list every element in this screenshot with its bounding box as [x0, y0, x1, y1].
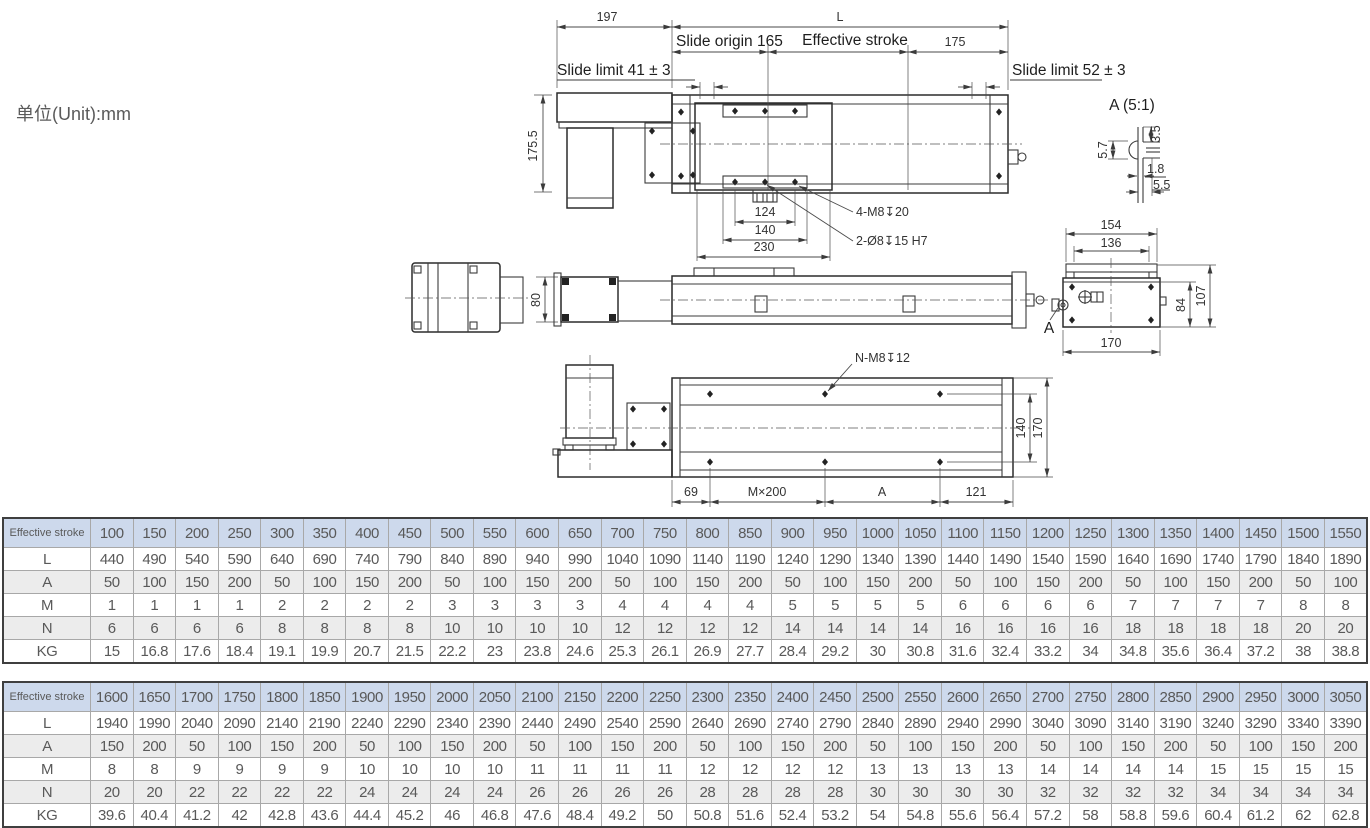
stroke-value: 1050 — [899, 518, 942, 548]
dim-107: 107 — [1194, 286, 1208, 307]
stroke-value: 2900 — [1197, 682, 1240, 712]
stroke-value: 2450 — [814, 682, 857, 712]
value-cell: 890 — [473, 548, 516, 571]
dim-154: 154 — [1101, 218, 1122, 232]
value-cell: 33.2 — [1027, 640, 1070, 664]
value-cell: 940 — [516, 548, 559, 571]
dim-L: L — [837, 10, 844, 24]
value-cell: 2 — [261, 594, 304, 617]
stroke-value: 1100 — [941, 518, 984, 548]
value-cell: 150 — [346, 571, 389, 594]
value-cell: 32 — [1154, 781, 1197, 804]
value-cell: 18.4 — [218, 640, 261, 664]
value-cell: 16 — [984, 617, 1027, 640]
value-cell: 200 — [729, 571, 772, 594]
value-cell: 3 — [473, 594, 516, 617]
stroke-value: 1550 — [1324, 518, 1367, 548]
value-cell: 11 — [601, 758, 644, 781]
value-cell: 100 — [218, 735, 261, 758]
value-cell: 11 — [516, 758, 559, 781]
end-view: A 154 136 84 107 170 — [1044, 218, 1216, 356]
value-cell: 32 — [1112, 781, 1155, 804]
value-cell: 100 — [473, 571, 516, 594]
stroke-value: 1850 — [303, 682, 346, 712]
stroke-value: 650 — [559, 518, 602, 548]
value-cell: 24 — [388, 781, 431, 804]
row-label: KG — [3, 804, 91, 828]
stroke-value: 2300 — [686, 682, 729, 712]
value-cell: 150 — [856, 571, 899, 594]
value-cell: 1940 — [91, 712, 134, 735]
value-cell: 200 — [1154, 735, 1197, 758]
value-cell: 4 — [729, 594, 772, 617]
stroke-value: 2600 — [941, 682, 984, 712]
value-cell: 2090 — [218, 712, 261, 735]
value-cell: 18 — [1154, 617, 1197, 640]
stroke-value: 1450 — [1239, 518, 1282, 548]
table-row-l: L194019902040209021402190224022902340239… — [3, 712, 1367, 735]
value-cell: 1990 — [133, 712, 176, 735]
value-cell: 2440 — [516, 712, 559, 735]
value-cell: 9 — [303, 758, 346, 781]
row-label: N — [3, 617, 91, 640]
stroke-value: 1400 — [1197, 518, 1240, 548]
stroke-value: 1650 — [133, 682, 176, 712]
stroke-value: 2200 — [601, 682, 644, 712]
value-cell: 8 — [388, 617, 431, 640]
stroke-value: 150 — [133, 518, 176, 548]
value-cell: 27.7 — [729, 640, 772, 664]
value-cell: 440 — [91, 548, 134, 571]
value-cell: 640 — [261, 548, 304, 571]
value-cell: 590 — [218, 548, 261, 571]
value-cell: 34 — [1197, 781, 1240, 804]
value-cell: 24 — [473, 781, 516, 804]
value-cell: 23 — [473, 640, 516, 664]
value-cell: 790 — [388, 548, 431, 571]
value-cell: 17.6 — [176, 640, 219, 664]
value-cell: 12 — [601, 617, 644, 640]
value-cell: 100 — [814, 571, 857, 594]
value-cell: 58 — [1069, 804, 1112, 828]
stroke-value: 1300 — [1112, 518, 1155, 548]
value-cell: 200 — [133, 735, 176, 758]
value-cell: 2640 — [686, 712, 729, 735]
value-cell: 1390 — [899, 548, 942, 571]
value-cell: 58.8 — [1112, 804, 1155, 828]
table-row-m: M889999101010101111111112121212131313131… — [3, 758, 1367, 781]
value-cell: 5 — [814, 594, 857, 617]
stroke-value: 750 — [644, 518, 687, 548]
dim-197: 197 — [597, 10, 618, 24]
value-cell: 9 — [218, 758, 261, 781]
value-cell: 1540 — [1027, 548, 1070, 571]
dim-84: 84 — [1174, 298, 1188, 312]
value-cell: 10 — [559, 617, 602, 640]
dim-124: 124 — [755, 205, 776, 219]
value-cell: 3 — [559, 594, 602, 617]
value-cell: 3390 — [1324, 712, 1367, 735]
value-cell: 6 — [133, 617, 176, 640]
stroke-value: 2750 — [1069, 682, 1112, 712]
side-elevation-view: 80 — [529, 268, 1048, 328]
value-cell: 3090 — [1069, 712, 1112, 735]
stroke-value: 1900 — [346, 682, 389, 712]
value-cell: 8 — [346, 617, 389, 640]
value-cell: 15 — [91, 640, 134, 664]
value-cell: 51.6 — [729, 804, 772, 828]
value-cell: 10 — [516, 617, 559, 640]
value-cell: 20 — [133, 781, 176, 804]
dim-80: 80 — [529, 293, 543, 307]
value-cell: 6 — [91, 617, 134, 640]
value-cell: 100 — [388, 735, 431, 758]
value-cell: 34 — [1069, 640, 1112, 664]
value-cell: 6 — [984, 594, 1027, 617]
stroke-value: 2700 — [1027, 682, 1070, 712]
value-cell: 11 — [644, 758, 687, 781]
value-cell: 14 — [1027, 758, 1070, 781]
value-cell: 690 — [303, 548, 346, 571]
value-cell: 9 — [261, 758, 304, 781]
stroke-value: 1350 — [1154, 518, 1197, 548]
value-cell: 46 — [431, 804, 474, 828]
value-cell: 26 — [559, 781, 602, 804]
value-cell: 200 — [1069, 571, 1112, 594]
dim-69: 69 — [684, 485, 698, 499]
value-cell: 50 — [431, 571, 474, 594]
table-row-kg: KG1516.817.618.419.119.920.721.522.22323… — [3, 640, 1367, 664]
value-cell: 20.7 — [346, 640, 389, 664]
value-cell: 28 — [771, 781, 814, 804]
value-cell: 62 — [1282, 804, 1325, 828]
value-cell: 12 — [644, 617, 687, 640]
value-cell: 25.3 — [601, 640, 644, 664]
value-cell: 30 — [856, 781, 899, 804]
stroke-value: 1800 — [261, 682, 304, 712]
stroke-value: 850 — [729, 518, 772, 548]
value-cell: 200 — [303, 735, 346, 758]
value-cell: 3140 — [1112, 712, 1155, 735]
value-cell: 200 — [388, 571, 431, 594]
value-cell: 50 — [91, 571, 134, 594]
value-cell: 14 — [856, 617, 899, 640]
value-cell: 200 — [644, 735, 687, 758]
value-cell: 1490 — [984, 548, 1027, 571]
value-cell: 150 — [261, 735, 304, 758]
stroke-value: 2950 — [1239, 682, 1282, 712]
dim-175: 175 — [945, 35, 966, 49]
value-cell: 11 — [559, 758, 602, 781]
value-cell: 13 — [984, 758, 1027, 781]
value-cell: 50.8 — [686, 804, 729, 828]
row-label: M — [3, 758, 91, 781]
value-cell: 42.8 — [261, 804, 304, 828]
value-cell: 100 — [984, 571, 1027, 594]
value-cell: 10 — [431, 617, 474, 640]
stroke-value: 2650 — [984, 682, 1027, 712]
value-cell: 150 — [686, 571, 729, 594]
value-cell: 52.4 — [771, 804, 814, 828]
value-cell: 100 — [899, 735, 942, 758]
stroke-header-row: Effective stroke160016501700175018001850… — [3, 682, 1367, 712]
value-cell: 28 — [729, 781, 772, 804]
value-cell: 10 — [346, 758, 389, 781]
stroke-value: 2850 — [1154, 682, 1197, 712]
value-cell: 20 — [1282, 617, 1325, 640]
value-cell: 100 — [303, 571, 346, 594]
value-cell: 15 — [1324, 758, 1367, 781]
value-cell: 40.4 — [133, 804, 176, 828]
value-cell: 16 — [1027, 617, 1070, 640]
stroke-value: 200 — [176, 518, 219, 548]
stroke-value: 400 — [346, 518, 389, 548]
value-cell: 22.2 — [431, 640, 474, 664]
row-label: L — [3, 548, 91, 571]
value-cell: 150 — [91, 735, 134, 758]
value-cell: 2490 — [559, 712, 602, 735]
value-cell: 61.2 — [1239, 804, 1282, 828]
value-cell: 12 — [771, 758, 814, 781]
value-cell: 26 — [601, 781, 644, 804]
stroke-value: 800 — [686, 518, 729, 548]
value-cell: 8 — [303, 617, 346, 640]
row-label: L — [3, 712, 91, 735]
value-cell: 490 — [133, 548, 176, 571]
value-cell: 18 — [1197, 617, 1240, 640]
value-cell: 38.8 — [1324, 640, 1367, 664]
value-cell: 10 — [473, 758, 516, 781]
value-cell: 8 — [261, 617, 304, 640]
value-cell: 200 — [814, 735, 857, 758]
value-cell: 12 — [686, 758, 729, 781]
stroke-value: 2800 — [1112, 682, 1155, 712]
stroke-value: 1700 — [176, 682, 219, 712]
value-cell: 35.6 — [1154, 640, 1197, 664]
plan-view: 197 L Slide origin 165 Effective stroke … — [526, 10, 1126, 261]
value-cell: 24 — [431, 781, 474, 804]
value-cell: 2990 — [984, 712, 1027, 735]
value-cell: 9 — [176, 758, 219, 781]
dimension-table-2: Effective stroke160016501700175018001850… — [2, 681, 1368, 828]
value-cell: 30.8 — [899, 640, 942, 664]
value-cell: 3 — [431, 594, 474, 617]
row-label: A — [3, 571, 91, 594]
table-row-a: A501001502005010015020050100150200501001… — [3, 571, 1367, 594]
value-cell: 7 — [1112, 594, 1155, 617]
value-cell: 13 — [941, 758, 984, 781]
value-cell: 37.2 — [1239, 640, 1282, 664]
value-cell: 22 — [176, 781, 219, 804]
value-cell: 10 — [388, 758, 431, 781]
value-cell: 200 — [473, 735, 516, 758]
value-cell: 24 — [346, 781, 389, 804]
value-cell: 26.9 — [686, 640, 729, 664]
value-cell: 1 — [218, 594, 261, 617]
row-label: M — [3, 594, 91, 617]
slide-origin-label: Slide origin 165 — [676, 33, 783, 50]
value-cell: 15 — [1197, 758, 1240, 781]
value-cell: 150 — [1112, 735, 1155, 758]
stroke-value: 350 — [303, 518, 346, 548]
dim-170-bottom: 170 — [1031, 418, 1045, 439]
value-cell: 100 — [133, 571, 176, 594]
table-row-m: M111122223333444455556666777788 — [3, 594, 1367, 617]
value-cell: 200 — [559, 571, 602, 594]
value-cell: 100 — [559, 735, 602, 758]
stroke-value: 1200 — [1027, 518, 1070, 548]
detail-a-view: A (5:1) 5.7 3.5 1.8 5.5 — [1096, 97, 1170, 203]
value-cell: 14 — [1154, 758, 1197, 781]
dim-A: A — [878, 485, 887, 499]
slide-limit-left-label: Slide limit 41 ± 3 — [557, 62, 671, 79]
value-cell: 50 — [346, 735, 389, 758]
stroke-value: 1000 — [856, 518, 899, 548]
value-cell: 15 — [1239, 758, 1282, 781]
value-cell: 1640 — [1112, 548, 1155, 571]
dim-3-5: 3.5 — [1149, 125, 1163, 142]
value-cell: 2590 — [644, 712, 687, 735]
stroke-value: 1600 — [91, 682, 134, 712]
row-label: KG — [3, 640, 91, 664]
row-label: N — [3, 781, 91, 804]
value-cell: 6 — [941, 594, 984, 617]
value-cell: 6 — [1027, 594, 1070, 617]
value-cell: 21.5 — [388, 640, 431, 664]
effective-stroke-label: Effective stroke — [802, 32, 908, 49]
stroke-value: 550 — [473, 518, 516, 548]
value-cell: 2740 — [771, 712, 814, 735]
value-cell: 2190 — [303, 712, 346, 735]
dim-1-8: 1.8 — [1147, 162, 1164, 176]
value-cell: 200 — [1324, 735, 1367, 758]
value-cell: 34 — [1324, 781, 1367, 804]
dim-230: 230 — [754, 240, 775, 254]
value-cell: 16 — [1069, 617, 1112, 640]
stroke-value: 1500 — [1282, 518, 1325, 548]
value-cell: 53.2 — [814, 804, 857, 828]
value-cell: 8 — [1282, 594, 1325, 617]
value-cell: 59.6 — [1154, 804, 1197, 828]
value-cell: 34 — [1282, 781, 1325, 804]
value-cell: 50 — [601, 571, 644, 594]
value-cell: 7 — [1197, 594, 1240, 617]
value-cell: 1690 — [1154, 548, 1197, 571]
value-cell: 28 — [814, 781, 857, 804]
dim-136: 136 — [1101, 236, 1122, 250]
value-cell: 8 — [91, 758, 134, 781]
value-cell: 13 — [856, 758, 899, 781]
bottom-view: N-M8↧12 140 170 69 M×200 A 121 — [553, 351, 1053, 507]
table-row-a: A150200501001502005010015020050100150200… — [3, 735, 1367, 758]
dim-121: 121 — [966, 485, 987, 499]
dim-5-7: 5.7 — [1096, 141, 1110, 158]
value-cell: 5 — [856, 594, 899, 617]
value-cell: 7 — [1154, 594, 1197, 617]
effective-stroke-label: Effective stroke — [3, 682, 91, 712]
value-cell: 150 — [516, 571, 559, 594]
value-cell: 3240 — [1197, 712, 1240, 735]
value-cell: 6 — [176, 617, 219, 640]
stroke-value: 3000 — [1282, 682, 1325, 712]
value-cell: 14 — [899, 617, 942, 640]
value-cell: 14 — [1112, 758, 1155, 781]
value-cell: 24.6 — [559, 640, 602, 664]
value-cell: 14 — [1069, 758, 1112, 781]
value-cell: 32 — [1027, 781, 1070, 804]
value-cell: 2790 — [814, 712, 857, 735]
value-cell: 26 — [644, 781, 687, 804]
value-cell: 1090 — [644, 548, 687, 571]
stroke-value: 250 — [218, 518, 261, 548]
stroke-value: 2100 — [516, 682, 559, 712]
stroke-value: 2000 — [431, 682, 474, 712]
value-cell: 23.8 — [516, 640, 559, 664]
value-cell: 20 — [91, 781, 134, 804]
value-cell: 39.6 — [91, 804, 134, 828]
value-cell: 1 — [133, 594, 176, 617]
value-cell: 20 — [1324, 617, 1367, 640]
detail-a-pointer-label: A — [1044, 320, 1055, 337]
value-cell: 150 — [941, 735, 984, 758]
value-cell: 48.4 — [559, 804, 602, 828]
value-cell: 50 — [1027, 735, 1070, 758]
value-cell: 44.4 — [346, 804, 389, 828]
value-cell: 18 — [1239, 617, 1282, 640]
value-cell: 8 — [1324, 594, 1367, 617]
value-cell: 100 — [1239, 735, 1282, 758]
stroke-value: 900 — [771, 518, 814, 548]
value-cell: 30 — [899, 781, 942, 804]
value-cell: 16.8 — [133, 640, 176, 664]
value-cell: 54.8 — [899, 804, 942, 828]
value-cell: 2390 — [473, 712, 516, 735]
value-cell: 56.4 — [984, 804, 1027, 828]
value-cell: 12 — [729, 617, 772, 640]
value-cell: 2140 — [261, 712, 304, 735]
value-cell: 5 — [899, 594, 942, 617]
value-cell: 4 — [601, 594, 644, 617]
value-cell: 60.4 — [1197, 804, 1240, 828]
value-cell: 1440 — [941, 548, 984, 571]
value-cell: 10 — [473, 617, 516, 640]
value-cell: 150 — [601, 735, 644, 758]
value-cell: 50 — [1112, 571, 1155, 594]
value-cell: 49.2 — [601, 804, 644, 828]
value-cell: 1240 — [771, 548, 814, 571]
value-cell: 1790 — [1239, 548, 1282, 571]
value-cell: 100 — [729, 735, 772, 758]
value-cell: 22 — [261, 781, 304, 804]
value-cell: 50 — [176, 735, 219, 758]
value-cell: 2340 — [431, 712, 474, 735]
value-cell: 50 — [856, 735, 899, 758]
table-row-l: L440490540590640690740790840890940990104… — [3, 548, 1367, 571]
stroke-value: 2250 — [644, 682, 687, 712]
motor-top-view — [405, 263, 528, 332]
effective-stroke-label: Effective stroke — [3, 518, 91, 548]
value-cell: 2040 — [176, 712, 219, 735]
value-cell: 50 — [1282, 571, 1325, 594]
stroke-value: 1950 — [388, 682, 431, 712]
note-n-m8: N-M8↧12 — [855, 351, 910, 365]
value-cell: 4 — [686, 594, 729, 617]
table-row-kg: KG39.640.441.24242.843.644.445.24646.847… — [3, 804, 1367, 828]
dim-170-end: 170 — [1101, 336, 1122, 350]
value-cell: 26 — [516, 781, 559, 804]
value-cell: 1 — [176, 594, 219, 617]
value-cell: 3190 — [1154, 712, 1197, 735]
